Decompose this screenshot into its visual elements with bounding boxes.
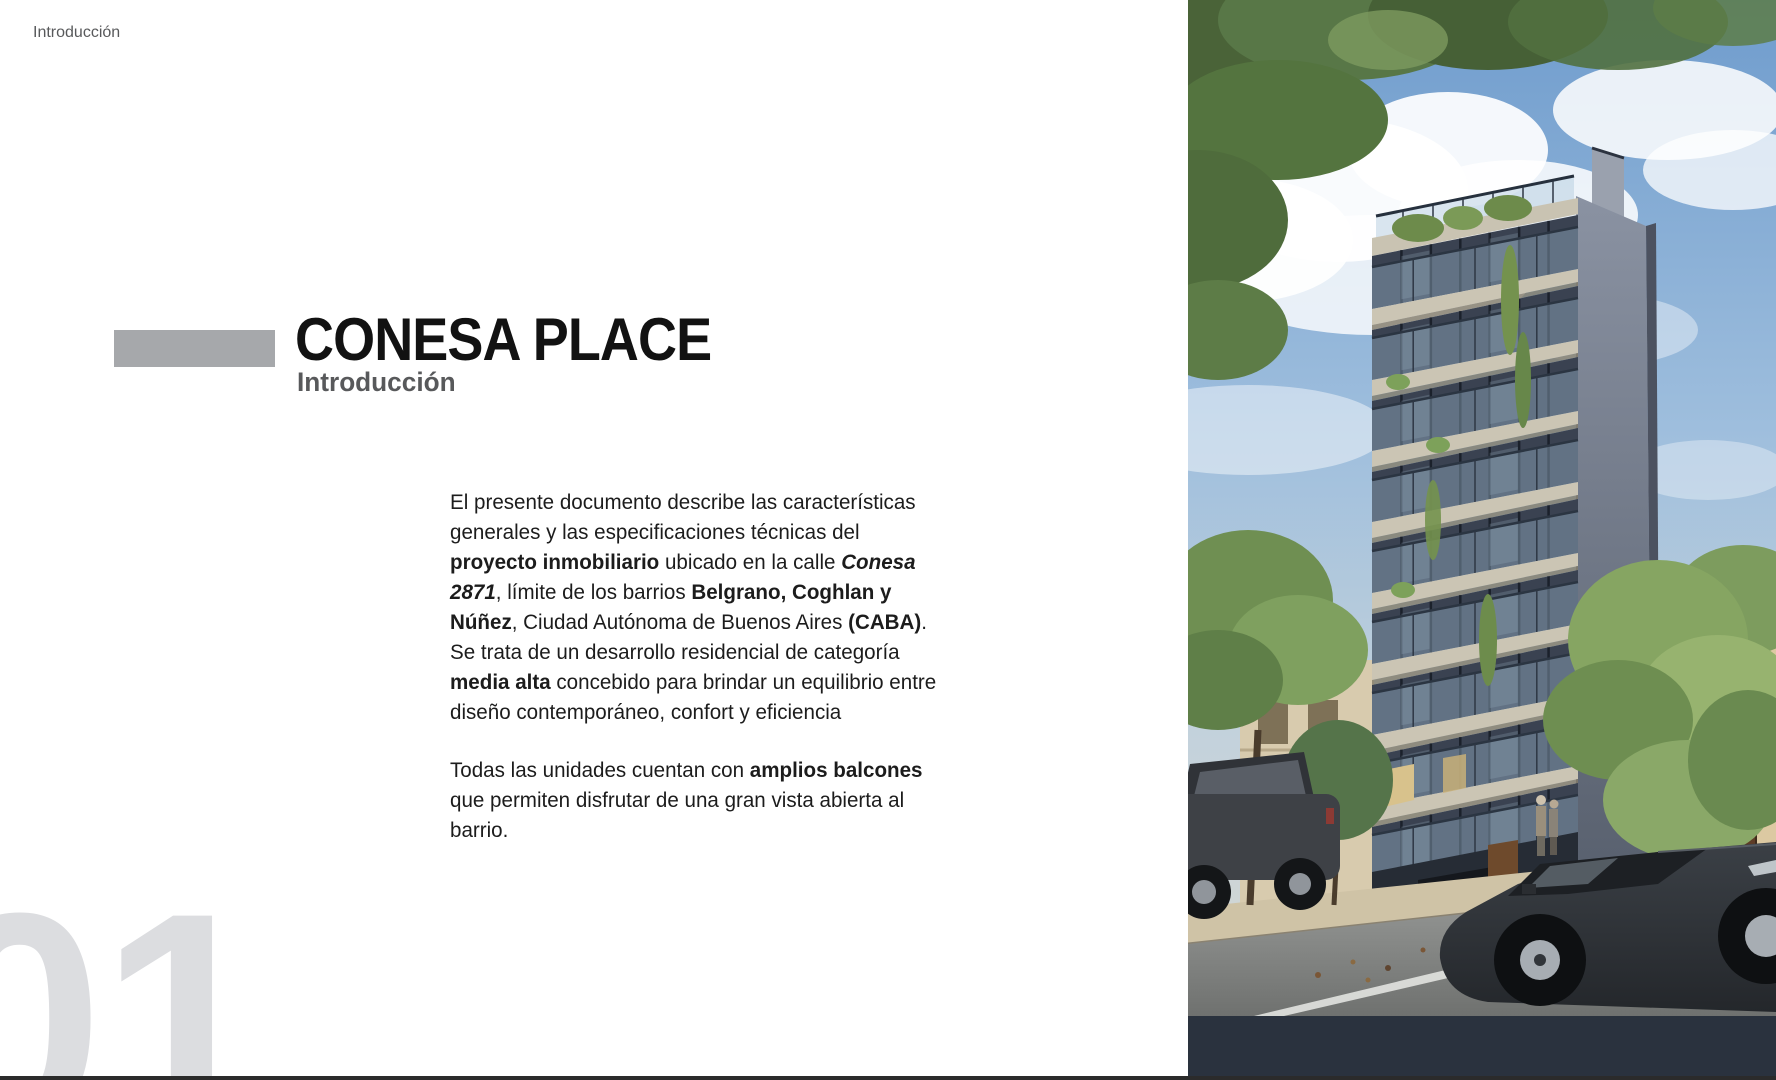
body-text: El presente documento describe las carac… [450, 488, 1077, 846]
image-footer-bar [1188, 1016, 1776, 1080]
paragraph: El presente documento describe las carac… [450, 488, 1077, 728]
title-accent-bar [114, 330, 275, 367]
breadcrumb: Introducción [33, 24, 120, 42]
bottom-rule [0, 1076, 1776, 1080]
slide: Introducción CONESA PLACE Introducción E… [0, 0, 1776, 1080]
paragraph: Todas las unidades cuentan con amplios b… [450, 756, 1077, 846]
page-subtitle: Introducción [297, 366, 456, 398]
page-number-watermark: 01 [0, 868, 266, 1080]
hero-image [1188, 0, 1776, 1016]
building-render-image [1188, 0, 1776, 1016]
page-title: CONESA PLACE [295, 308, 711, 372]
